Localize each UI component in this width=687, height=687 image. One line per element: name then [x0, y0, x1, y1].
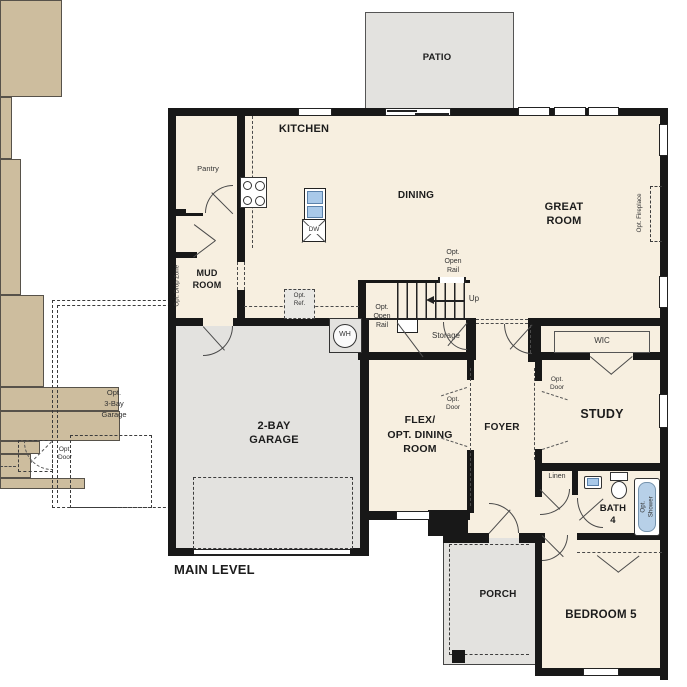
- dining-label: DINING: [385, 189, 447, 202]
- opt-door-label: Opt. Door: [50, 446, 80, 462]
- wall: [535, 355, 542, 381]
- flex-room-label: FLEX/ OPT. DINING ROOM: [368, 413, 472, 457]
- door-opening: [203, 319, 233, 326]
- wall: [443, 533, 489, 543]
- wall: [237, 290, 245, 320]
- open-rail-marker: [438, 277, 466, 283]
- window: [554, 107, 586, 116]
- wall: [535, 533, 542, 676]
- mud-room-label: MUD ROOM: [182, 268, 232, 291]
- wall: [168, 108, 176, 556]
- porch-post: [452, 650, 465, 663]
- kitchen-counter: [0, 159, 21, 295]
- wall: [358, 352, 470, 360]
- garage-door-opening: [194, 549, 350, 556]
- window: [298, 108, 332, 116]
- floor-plan: PATIO Opt. 3-Bay Garage Opt. Door: [0, 0, 687, 687]
- opt-fireplace-label: Opt. Fireplace: [636, 186, 644, 240]
- wall: [176, 318, 203, 326]
- opt-open-rail-label: Opt. Open Rail: [364, 304, 400, 330]
- opt-open-rail-label: Opt. Open Rail: [436, 249, 470, 275]
- window: [659, 276, 668, 308]
- cased-opening-dash: [244, 262, 245, 290]
- wall: [233, 318, 330, 326]
- sink-basin: [307, 191, 323, 204]
- wic-label: WIC: [580, 336, 624, 346]
- opt-shower-label: Opt. Shower: [639, 485, 655, 529]
- pantry-shelving: [0, 0, 62, 97]
- opt-door-label: Opt. Door: [438, 396, 468, 412]
- window: [518, 107, 550, 116]
- window: [583, 668, 619, 676]
- up-label: Up: [464, 294, 484, 304]
- wall: [528, 318, 662, 326]
- kitchen-label: KITCHEN: [272, 122, 336, 136]
- pantry-label: Pantry: [186, 164, 230, 173]
- wall: [535, 463, 665, 471]
- up-arrow-icon: [426, 296, 434, 304]
- bath-sink-basin: [587, 478, 599, 486]
- main-level-title: MAIN LEVEL: [174, 562, 314, 579]
- cased-opening-dash: [237, 262, 238, 290]
- closet-dash: [577, 552, 662, 553]
- opt-3bay-garage-label: Opt. 3-Bay Garage: [85, 388, 143, 421]
- opt-door-dash: [470, 368, 471, 506]
- wall: [540, 352, 590, 360]
- property-dash: [0, 466, 16, 467]
- water-heater-label: WH: [333, 331, 357, 340]
- opt-door-label: Opt. Door: [542, 376, 572, 392]
- stairs-direction-line: [433, 300, 465, 302]
- burner: [243, 181, 252, 190]
- foyer-label: FOYER: [472, 421, 532, 434]
- opt-drop-zone-cabinet: [0, 97, 12, 159]
- burner: [255, 196, 265, 206]
- opt-refrigerator-label: Opt. Ref.: [284, 292, 315, 308]
- burner: [255, 181, 265, 191]
- window: [588, 107, 619, 116]
- wall: [633, 352, 662, 360]
- garage-label: 2-BAY GARAGE: [238, 419, 310, 448]
- toilet-tank: [610, 472, 628, 481]
- great-room-label: GREAT ROOM: [532, 200, 596, 229]
- window: [659, 394, 668, 428]
- kitchen-island: [0, 295, 44, 387]
- window: [396, 511, 430, 520]
- wall: [168, 548, 194, 556]
- burner: [243, 196, 252, 205]
- study-label: STUDY: [570, 406, 634, 422]
- dishwasher-label: DW: [304, 226, 324, 234]
- window: [659, 124, 668, 156]
- opt-fireplace-outline: [650, 186, 662, 242]
- opt-drop-zone-label: Opt. Drop Zone: [174, 256, 182, 316]
- porch-label: PORCH: [468, 588, 528, 601]
- sink-basin: [307, 206, 323, 218]
- linen-label: Linen: [537, 473, 577, 482]
- sliding-door-panel: [415, 113, 449, 115]
- opt-door-dash: [534, 368, 535, 460]
- bedroom5-label: BEDROOM 5: [546, 608, 656, 623]
- toilet-bowl: [611, 481, 627, 499]
- opt-3bay-garage-door-outline: [70, 435, 152, 508]
- sliding-door-panel: [387, 110, 417, 112]
- garage-door-dashed-outline: [193, 477, 353, 549]
- patio-label: PATIO: [405, 52, 469, 64]
